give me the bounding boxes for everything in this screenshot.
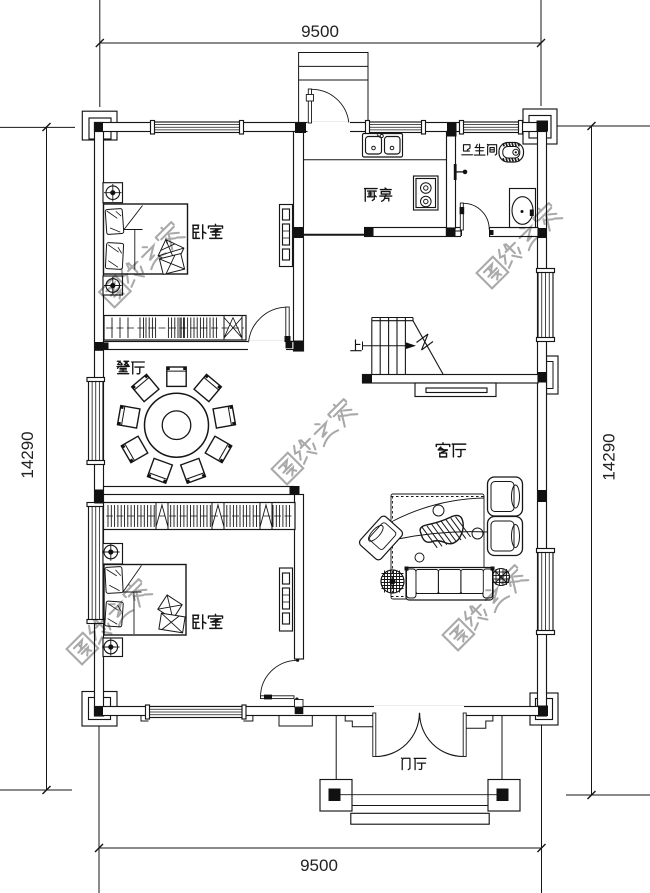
svg-text:14290: 14290 [18, 431, 37, 478]
svg-text:9500: 9500 [301, 22, 339, 41]
svg-text:9500: 9500 [300, 856, 338, 875]
svg-text:14290: 14290 [600, 433, 619, 480]
